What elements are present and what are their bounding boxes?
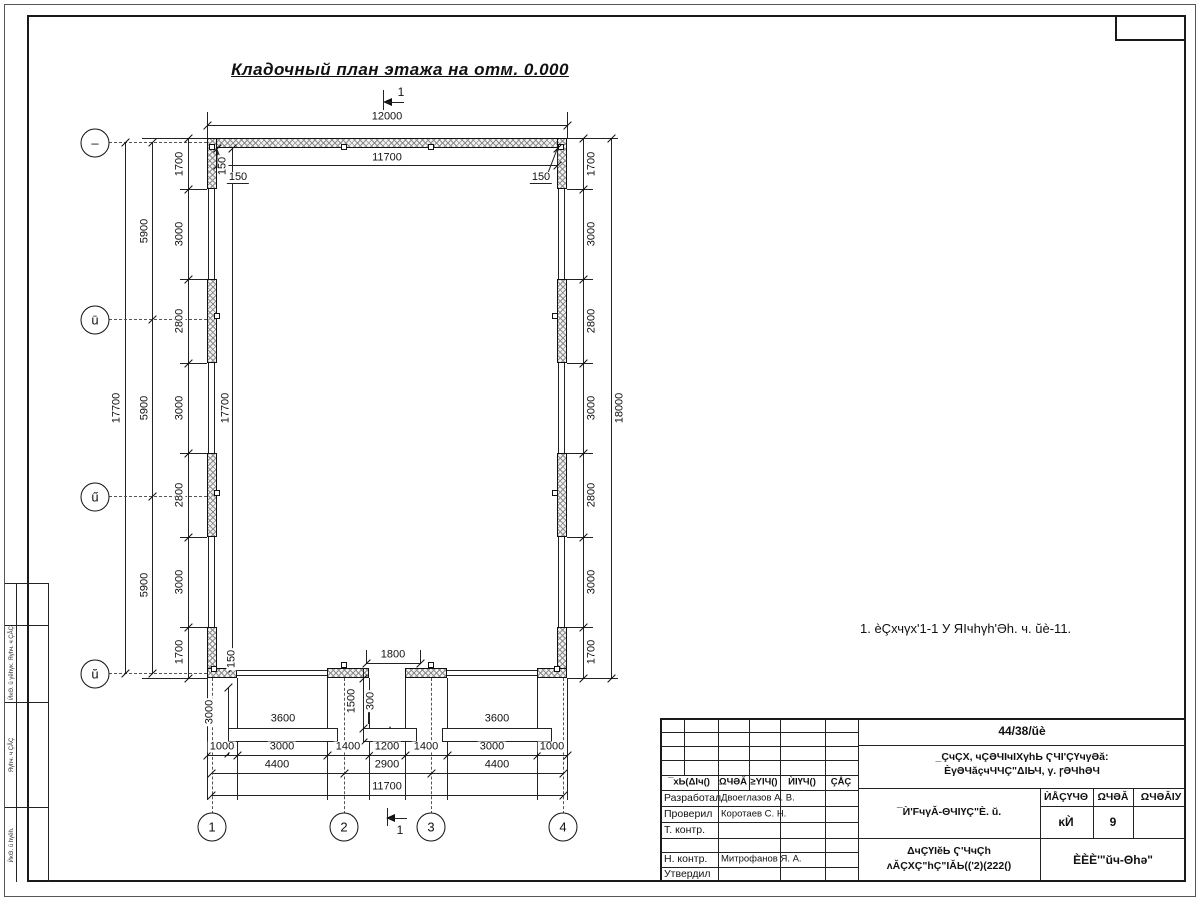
- dimension-line: [661, 790, 858, 791]
- titleblock-role: Т. контр.: [664, 824, 705, 836]
- dimension-line: [208, 537, 209, 627]
- dimension-line: [237, 675, 327, 676]
- dimension-line: [217, 165, 557, 166]
- detail-square: [554, 666, 560, 672]
- axis-line: [109, 496, 207, 497]
- dimension-line: [180, 363, 207, 364]
- dimension-label: 150: [227, 172, 249, 184]
- dimension-label: 17700: [221, 391, 232, 426]
- titleblock-header-col: ÇÅÇ: [831, 777, 852, 788]
- wall-segment: [207, 279, 217, 363]
- dimension-line: [188, 138, 189, 678]
- company-name: ÈÈÈ'"ŭч-Θhə": [1073, 853, 1153, 867]
- dimension-line: [389, 818, 407, 819]
- dimension-label: 2900: [373, 760, 401, 771]
- sheet-value: 9: [1110, 815, 1117, 829]
- dimension-label: 3000: [175, 220, 186, 248]
- titleblock-name: Коротаев С. Н.: [721, 809, 786, 820]
- detail-square: [428, 662, 434, 668]
- dimension-label: 4400: [483, 760, 511, 771]
- dimension-line: [447, 670, 537, 671]
- axis-bubble-bottom: 3: [417, 813, 446, 842]
- dimension-label: 5900: [140, 394, 151, 422]
- dimension-label: 1700: [587, 638, 598, 666]
- detail-square: [209, 144, 215, 150]
- dimension-line: [383, 90, 384, 110]
- dimension-line: [558, 363, 559, 453]
- dimension-line: [583, 138, 584, 678]
- dimension-line: [214, 363, 215, 453]
- dimension-label: 1400: [334, 742, 362, 753]
- org-line1: ΔчÇҮIĕЬ Ҁ'ЧчÇh: [907, 845, 991, 857]
- axis-bubble-left: –: [81, 128, 110, 157]
- dimension-label: 2800: [175, 481, 186, 509]
- stage-header: ЍÅÇҮЧΘ: [1044, 791, 1088, 803]
- detail-square: [552, 490, 558, 496]
- dimension-line: [1133, 788, 1134, 838]
- dimension-line: [5, 807, 48, 808]
- dimension-line: [564, 363, 565, 453]
- margin-cell-text-2: Яγhч. ч ÇÅÇ: [9, 738, 15, 773]
- dimension-line: [207, 755, 567, 756]
- titleblock-role: Разработал: [664, 792, 721, 804]
- dimension-label: 3600: [483, 714, 511, 725]
- dimension-line: [661, 806, 858, 807]
- dimension-line: [564, 537, 565, 627]
- dimension-line: [825, 720, 826, 880]
- dimension-label: 300: [366, 690, 377, 712]
- dimension-label: 5900: [140, 217, 151, 245]
- dimension-line: [232, 148, 233, 668]
- dimension-label: 1700: [175, 150, 186, 178]
- dimension-label: 17700: [112, 391, 123, 426]
- dimension-line: [661, 838, 858, 839]
- drawing-sheet: Кладочный план этажа на отм. 0.000 1. èÇ…: [0, 0, 1200, 900]
- dimension-line: [366, 663, 420, 664]
- dimension-line: [661, 746, 858, 747]
- dimension-line: [208, 189, 209, 279]
- dimension-line: [180, 279, 207, 280]
- dimension-label: 3000: [175, 394, 186, 422]
- axis-bubble-bottom: 2: [330, 813, 359, 842]
- titleblock-name: Двоеглазов А. В.: [721, 793, 795, 804]
- dimension-label: 1500: [347, 687, 358, 715]
- dimension-line: [180, 189, 207, 190]
- dimension-line: [142, 138, 207, 139]
- dimension-line: [237, 670, 327, 671]
- dimension-line: [567, 279, 593, 280]
- dimension-line: [567, 678, 568, 800]
- axis-bubble-bottom: 1: [198, 813, 227, 842]
- dimension-line: [214, 189, 215, 279]
- dimension-line: [661, 760, 858, 761]
- dimension-line: [180, 627, 207, 628]
- project-name-line1: _ÇчÇХ, чÇƏЧIчIХγhЬ ҀЧI'ÇҮчγƏă:: [936, 751, 1109, 763]
- dimension-label: 3600: [269, 714, 297, 725]
- detail-square: [341, 662, 347, 668]
- dimension-line: [180, 537, 207, 538]
- dimension-line: [211, 773, 563, 774]
- dimension-label: 1000: [538, 742, 566, 753]
- dimension-line: [1040, 788, 1041, 880]
- dimension-line: [5, 702, 48, 703]
- margin-cell-text-3: ЍĸΘ. ŭ hγĕh.: [9, 828, 15, 863]
- titleblock-header-col: ≥YIЧ(): [750, 777, 777, 788]
- titleblock-role: Утвердил: [664, 868, 711, 880]
- dimension-label: 18000: [615, 391, 626, 426]
- dimension-label: 1400: [412, 742, 440, 753]
- detail-square: [214, 313, 220, 319]
- sheets-header: ΩЧƏǍIУ: [1141, 791, 1181, 803]
- dimension-line: [447, 675, 537, 676]
- dimension-line: [48, 583, 49, 882]
- dimension-line: [214, 537, 215, 627]
- dimension-label: 3000: [478, 742, 506, 753]
- project-name-line2: ÈγƏЧăçчЧЧÇ"ΔIЬЧ, γ. ꞅƏЧhƏЧ: [944, 764, 1100, 778]
- axis-bubble-left: ű: [81, 482, 110, 511]
- wall-segment: [537, 668, 567, 678]
- detail-square: [552, 313, 558, 319]
- axis-line: [109, 319, 207, 320]
- dimension-label: 1700: [175, 638, 186, 666]
- dimension-label: 4400: [263, 760, 291, 771]
- dimension-label: 2800: [587, 481, 598, 509]
- dimension-line: [1040, 806, 1186, 807]
- dimension-line: [208, 363, 209, 453]
- dimension-label: 150: [530, 172, 552, 184]
- dimension-line: [858, 745, 1186, 746]
- titleblock-header-col: ¯хЬ(ΔIч(): [668, 777, 710, 788]
- dimension-label: 3000: [268, 742, 296, 753]
- detail-square: [428, 144, 434, 150]
- wall-segment: [557, 279, 567, 363]
- dimension-line: [661, 732, 858, 733]
- dimension-label: 1000: [208, 742, 236, 753]
- dimension-line: [567, 189, 593, 190]
- dimension-line: [611, 138, 612, 678]
- detail-square: [211, 666, 217, 672]
- dimension-line: [567, 627, 593, 628]
- dimension-label: 1800: [379, 650, 407, 661]
- dimension-line: [567, 537, 593, 538]
- detail-square: [214, 490, 220, 496]
- titleblock-role: Проверил: [664, 808, 712, 820]
- dimension-line: [211, 795, 563, 796]
- titleblock-name: Митрофанов Я. А.: [721, 854, 802, 865]
- titleblock-header-col: ЍIҮЧ(): [788, 777, 816, 788]
- dimension-line: [567, 453, 593, 454]
- axis-bubble-left: ū: [81, 305, 110, 334]
- titleblock-role: Н. контр.: [664, 853, 707, 865]
- sheet-header: ΩЧƏǍ: [1097, 791, 1128, 803]
- dimension-line: [1093, 788, 1094, 838]
- org-line2: ʌǍÇХÇ"hÇ"IǍЬ(('2)(222(): [887, 860, 1011, 872]
- dimension-label: 11700: [370, 153, 404, 164]
- dimension-line: [558, 189, 559, 279]
- dimension-line: [387, 808, 388, 826]
- dimension-line: [558, 537, 559, 627]
- dimension-label: 3000: [587, 394, 598, 422]
- dimension-label: 150: [227, 648, 238, 670]
- dimension-line: [16, 583, 17, 882]
- dimension-label: 11700: [370, 782, 404, 793]
- dimension-line: [858, 838, 1186, 839]
- dimension-label: 12000: [370, 112, 405, 123]
- dimension-label: 3000: [205, 698, 216, 726]
- dimension-line: [564, 189, 565, 279]
- dimension-line: [5, 583, 48, 584]
- dimension-label: 2800: [175, 307, 186, 335]
- titleblock-header-col: ΩЧƏǍ: [719, 777, 747, 788]
- sheet-title: ¯Ѝ'FчγǍ-ΘЧIҮÇ"È. ŭ.: [897, 806, 1001, 818]
- dimension-line: [180, 453, 207, 454]
- wall-segment: [405, 668, 447, 678]
- dimension-line: [661, 822, 858, 823]
- dimension-label: 3000: [175, 568, 186, 596]
- dimension-label: 2800: [587, 307, 598, 335]
- dimension-line: [684, 720, 685, 775]
- dimension-line: [567, 363, 593, 364]
- dimension-line: [386, 102, 404, 103]
- dimension-line: [142, 678, 207, 679]
- axis-bubble-bottom: 4: [549, 813, 578, 842]
- dimension-line: [207, 125, 567, 126]
- dimension-line: [858, 788, 1186, 789]
- dimension-line: [152, 142, 153, 674]
- wall-segment: [207, 138, 567, 148]
- dimension-line: [207, 678, 208, 800]
- doc-number: 44/38/ŭè: [998, 724, 1045, 738]
- axis-bubble-left: ŭ: [81, 659, 110, 688]
- dimension-label: 3000: [587, 220, 598, 248]
- stage-value: ĸЍ: [1058, 815, 1073, 829]
- wall-segment: [557, 453, 567, 537]
- dimension-line: [125, 142, 126, 674]
- dimension-label: 1200: [373, 742, 401, 753]
- dimension-label: 5900: [140, 571, 151, 599]
- dimension-label: 1700: [587, 150, 598, 178]
- margin-cell-text-1: ЍĸΘ. ŭ γĕhγĸ. Яγhч. ч ÇÅÇ: [9, 626, 15, 700]
- detail-square: [341, 144, 347, 150]
- dimension-line: [858, 720, 859, 880]
- dimension-label: 3000: [587, 568, 598, 596]
